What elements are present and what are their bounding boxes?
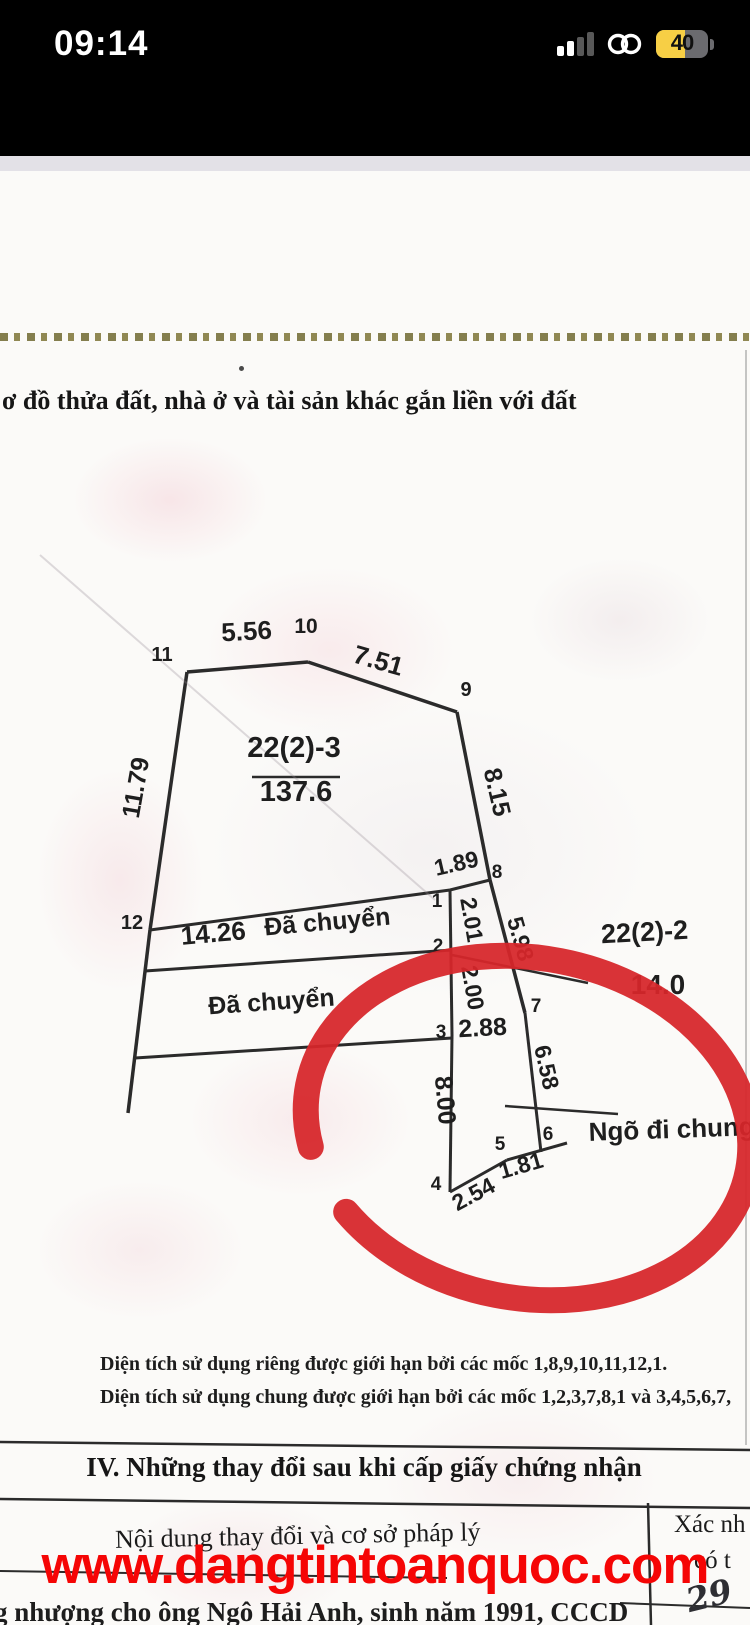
- link-icon: [605, 31, 645, 57]
- status-icons: 40: [557, 30, 714, 58]
- browser-chrome-strip: [0, 156, 750, 171]
- status-bar: 09:14 40: [0, 0, 750, 156]
- ink-speck: [239, 366, 244, 371]
- site-watermark: www.dangtintoanquoc.com: [0, 1535, 750, 1596]
- phone-screen: 09:14 40 ơ đồ thửa đất, nhà ở và tài sản…: [0, 0, 750, 1625]
- usage-note-private: Diện tích sử dụng riêng được giới hạn bở…: [100, 1353, 667, 1376]
- bottom-clipped-text: g nhượng cho ông Ngô Hải Anh, sinh năm 1…: [0, 1597, 628, 1625]
- battery-icon: 40: [656, 30, 714, 58]
- battery-nub: [710, 39, 714, 50]
- battery-percent: 40: [656, 30, 708, 56]
- clock: 09:14: [54, 24, 149, 64]
- section-iv-heading: IV. Những thay đổi sau khi cấp giấy chứn…: [0, 1452, 728, 1483]
- dashed-separator: [0, 333, 750, 341]
- document-title: ơ đồ thửa đất, nhà ở và tài sản khác gắn…: [2, 386, 577, 416]
- cellular-signal-icon: [557, 32, 594, 56]
- usage-note-shared: Diện tích sử dụng chung được giới hạn bở…: [100, 1386, 731, 1409]
